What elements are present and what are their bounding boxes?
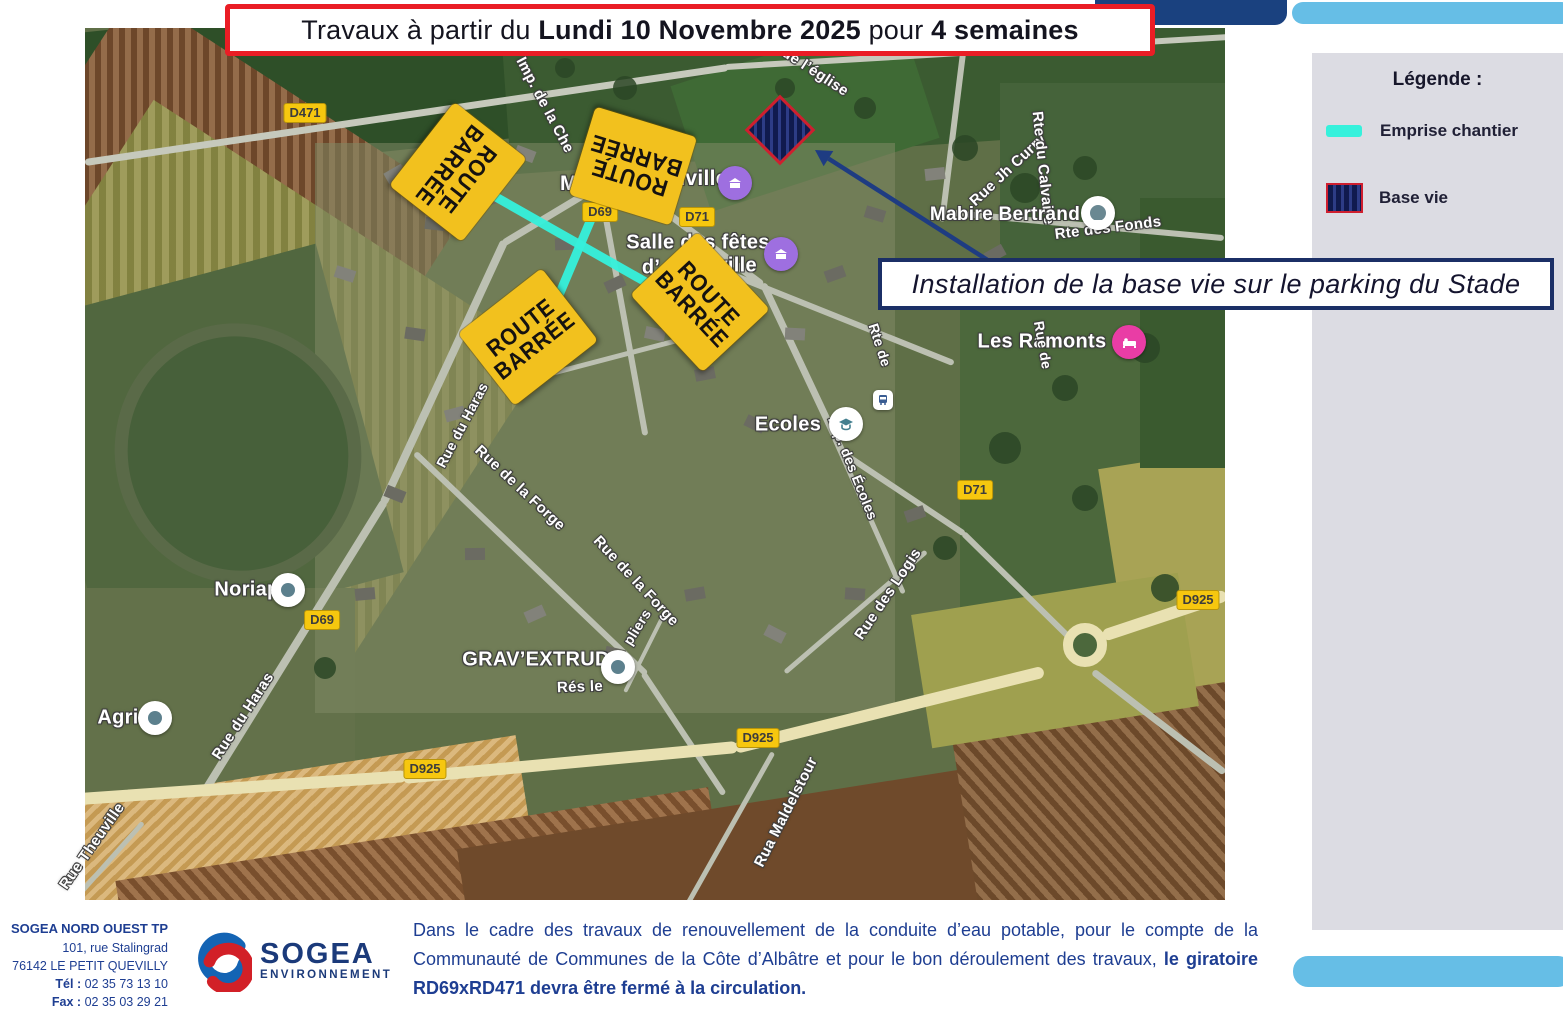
tree [613,76,637,100]
works-notice-flyer: Travaux à partir du Lundi 10 Novembre 20… [0,0,1563,1016]
company-name: SOGEA NORD OUEST TP [8,920,168,939]
house [355,587,376,601]
house [404,327,425,342]
tree [952,135,978,161]
tree [1052,375,1078,401]
tree [933,536,957,560]
house [555,238,575,251]
tree [1130,333,1160,363]
legend-item-base-vie: Base vie [1326,183,1563,213]
sogea-logo: SOGEA ENVIRONNEMENT [196,930,392,992]
tree [1072,485,1098,511]
banner-duration: 4 semaines [931,15,1079,46]
legend-item-emprise: Emprise chantier [1326,121,1563,141]
legend-label: Emprise chantier [1380,121,1518,141]
title-banner: Travaux à partir du Lundi 10 Novembre 20… [225,4,1155,56]
tree [989,432,1021,464]
base-vie-swatch [1326,183,1363,213]
legend-title: Légende : [1312,69,1563,91]
house [845,587,866,600]
company-city: 76142 LE PETIT QUEVILLY [8,957,168,975]
legend-panel: Légende : Emprise chantier Base vie [1312,53,1563,930]
company-phone: Tél : 02 35 73 13 10 [8,975,168,993]
tree [854,97,876,119]
tree [1151,574,1179,602]
emprise-chantier-swatch [1326,125,1362,137]
base-vie-callout: Installation de la base vie sur le parki… [878,258,1554,310]
tree [775,78,795,98]
tree [555,58,575,78]
house [904,505,927,523]
legend-label: Base vie [1379,188,1448,208]
tree [314,657,336,679]
banner-text-1: Travaux à partir du [301,15,538,46]
sogea-logo-name: SOGEA [260,940,392,969]
company-address-block: SOGEA NORD OUEST TP 101, rue Stalingrad … [8,920,168,1011]
works-description: Dans le cadre des travaux de renouvellem… [413,916,1258,1003]
company-street: 101, rue Stalingrad [8,939,168,957]
bottom-blue-bar [1293,956,1563,987]
house [424,217,445,231]
banner-text-2: pour [861,15,931,46]
banner-date: Lundi 10 Novembre 2025 [538,15,861,46]
sogea-logo-subtitle: ENVIRONNEMENT [260,969,392,983]
callout-text: Installation de la base vie sur le parki… [912,269,1521,300]
satellite-map [85,28,1225,900]
house [924,167,945,181]
works-description-text: Dans le cadre des travaux de renouvellem… [413,920,1258,969]
top-blue-bar [1292,2,1563,24]
house [465,548,485,560]
company-fax: Fax : 02 35 03 29 21 [8,993,168,1011]
tree [1010,173,1040,203]
sogea-logo-mark [196,930,252,992]
house [785,327,806,340]
roundabout-rd69-rd471 [1063,623,1107,667]
tree [1073,156,1097,180]
